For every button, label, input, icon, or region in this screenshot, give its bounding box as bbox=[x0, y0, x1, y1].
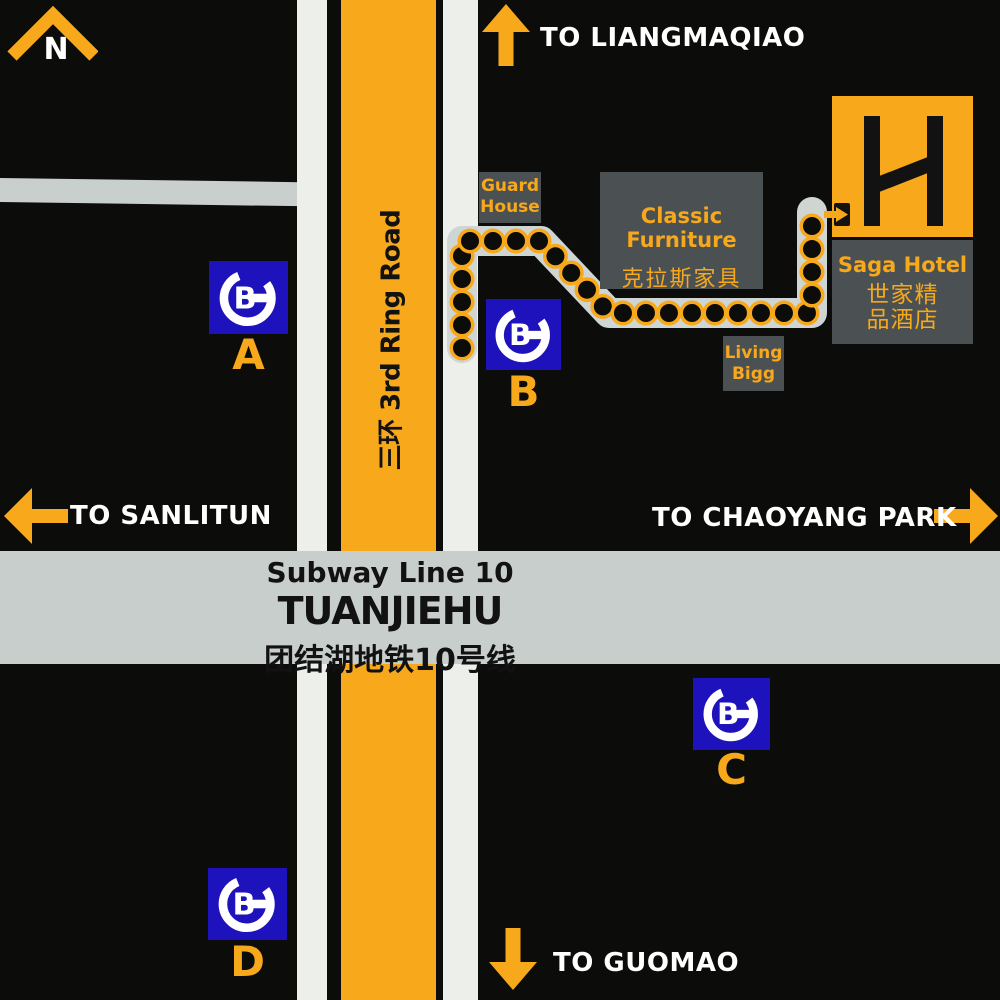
exit-d-label: D bbox=[208, 937, 287, 986]
compass-letter: N bbox=[43, 32, 68, 64]
classic-furniture-building: Classic Furniture 克拉斯家具 bbox=[600, 172, 763, 289]
living-bigg-line1: Living bbox=[723, 343, 784, 364]
exit-c-label: C bbox=[693, 745, 770, 794]
exit-b-label: B bbox=[486, 367, 561, 416]
hotel-name: Saga Hotel bbox=[832, 253, 973, 277]
direction-west-label: TO SANLITUN bbox=[70, 501, 272, 531]
station-name: TUANJIEHU bbox=[240, 589, 540, 633]
saga-hotel-logo-box bbox=[832, 96, 973, 237]
arrow-down-icon bbox=[489, 928, 537, 990]
guard-house-line2: House bbox=[479, 197, 541, 218]
exit-b-sign bbox=[486, 299, 561, 370]
compass: N bbox=[6, 6, 98, 64]
metro-logo-icon bbox=[700, 682, 764, 746]
direction-north-label: TO LIANGMAQIAO bbox=[540, 23, 805, 53]
exit-a-label: A bbox=[209, 330, 288, 379]
station-name-chinese: 团结湖地铁10号线 bbox=[240, 635, 540, 679]
metro-logo-icon bbox=[492, 303, 556, 367]
map-canvas: B 三环 3rd Ring Road Subway Line 10 TUANJI… bbox=[0, 0, 1000, 1000]
station-info: Subway Line 10 TUANJIEHU 团结湖地铁10号线 bbox=[240, 551, 540, 679]
entrance-arrow-icon bbox=[824, 201, 852, 227]
arrow-up-icon bbox=[482, 4, 530, 66]
saga-hotel-info: Saga Hotel 世家精 品酒店 bbox=[832, 240, 973, 344]
classic-furniture-name: Classic Furniture bbox=[600, 204, 763, 252]
metro-logo-icon bbox=[215, 871, 281, 937]
arrow-left-icon bbox=[4, 488, 68, 544]
hotel-h-logo-icon bbox=[832, 96, 973, 237]
subway-line-label: Subway Line 10 bbox=[240, 556, 540, 589]
exit-c-sign bbox=[693, 678, 770, 750]
exit-d-sign bbox=[208, 868, 287, 940]
hotel-name-chinese: 世家精 品酒店 bbox=[832, 283, 973, 333]
guard-house-line1: Guard bbox=[479, 176, 541, 197]
direction-east-label: TO CHAOYANG PARK bbox=[652, 503, 957, 533]
classic-furniture-name-chinese: 克拉斯家具 bbox=[600, 261, 763, 293]
north-chevron-icon: N bbox=[6, 6, 98, 64]
living-bigg-building: Living Bigg bbox=[723, 336, 784, 391]
living-bigg-line2: Bigg bbox=[723, 364, 784, 385]
direction-south-label: TO GUOMAO bbox=[553, 948, 739, 978]
exit-a-sign bbox=[209, 261, 288, 334]
guard-house: Guard House bbox=[479, 172, 541, 223]
metro-logo-icon bbox=[216, 265, 282, 331]
